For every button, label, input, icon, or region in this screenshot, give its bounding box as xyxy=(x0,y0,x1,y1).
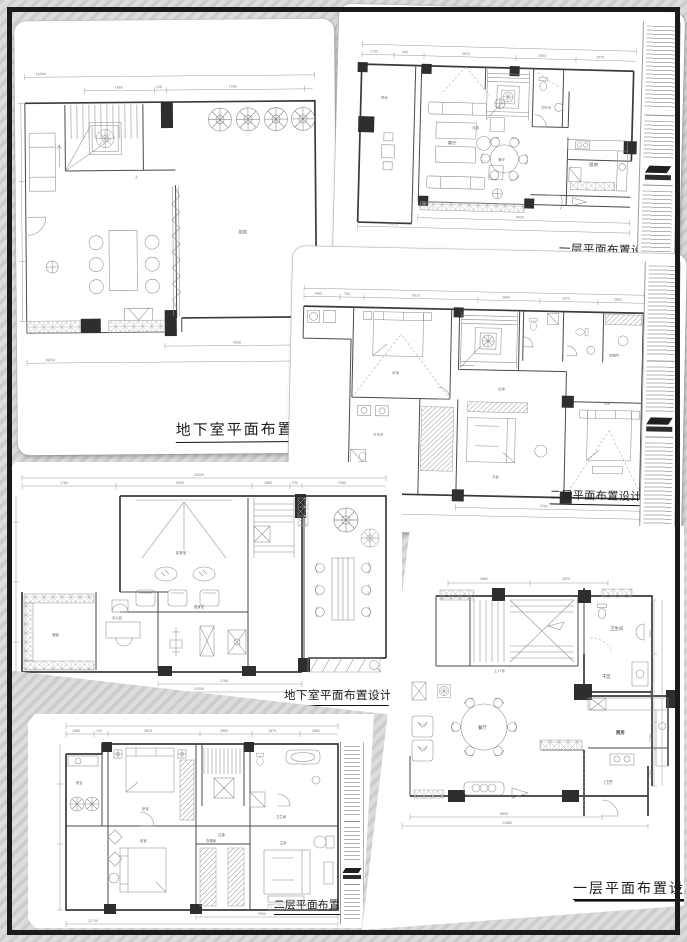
svg-text:1860: 1860 xyxy=(115,85,123,89)
company-logo xyxy=(645,417,673,432)
home-theater: 影音室 xyxy=(136,500,232,606)
svg-text:1465: 1465 xyxy=(72,729,80,733)
hall-label: 过道 xyxy=(218,832,225,837)
dimension-top: 1465 745 5615 2665 1875 2665 xyxy=(304,285,644,306)
svg-text:24300: 24300 xyxy=(194,687,204,691)
column xyxy=(161,102,173,128)
bath-label: 卫生间 xyxy=(610,625,623,632)
gym-label: 健身区 xyxy=(194,604,205,609)
office: 办公区 xyxy=(106,600,140,646)
svg-text:5050: 5050 xyxy=(233,340,241,344)
walls xyxy=(25,101,317,334)
svg-text:卫生间: 卫生间 xyxy=(373,432,384,437)
living-label: 客厅 xyxy=(448,139,458,146)
column xyxy=(578,590,591,603)
svg-text:1860: 1860 xyxy=(264,481,272,485)
foyer: 门厅 xyxy=(584,754,618,816)
stairs: 上 xyxy=(57,104,139,180)
bath-label: 卫生间 xyxy=(276,814,287,819)
svg-text:9600: 9600 xyxy=(500,812,508,816)
column xyxy=(574,684,592,700)
column xyxy=(358,62,368,72)
svg-text:2590: 2590 xyxy=(540,504,548,508)
svg-text:745: 745 xyxy=(96,729,102,733)
stairs xyxy=(254,498,294,558)
svg-text:1465: 1465 xyxy=(314,291,322,295)
bathroom xyxy=(534,73,563,128)
dimension-bottom: 5050 16650 xyxy=(27,340,317,367)
kitchen-label: 厨房 xyxy=(589,161,599,168)
svg-text:24300: 24300 xyxy=(194,473,204,477)
svg-text:1875: 1875 xyxy=(562,577,570,581)
sheet-title-second-floor-mid: 二层平面布置设计图 xyxy=(550,489,654,506)
garden-label: 花园 xyxy=(238,228,247,235)
svg-text:2985: 2985 xyxy=(649,630,653,638)
svg-text:5615: 5615 xyxy=(462,52,470,56)
dining-area: 餐厅 xyxy=(480,135,528,182)
svg-text:2665: 2665 xyxy=(614,298,622,302)
svg-text:16650: 16650 xyxy=(45,358,55,362)
bathroom: 卫生间 xyxy=(590,589,644,652)
basement-mid-plan: 24300 1780 5950 1860 330 5380 xyxy=(8,462,402,716)
dining-table xyxy=(89,230,160,294)
svg-text:衣帽间: 衣帽间 xyxy=(609,353,620,358)
foyer-label: 门厅 xyxy=(604,779,613,786)
utility xyxy=(307,310,335,323)
sheet-basement-mid: 24300 1780 5950 1860 330 5380 xyxy=(8,462,402,716)
column xyxy=(448,790,465,802)
bath-1 xyxy=(523,313,559,348)
column xyxy=(452,489,464,501)
kitchen-label: 厨房 xyxy=(616,729,625,736)
sheet-title-basement-mid: 地下室平面布置设计图 xyxy=(284,690,404,706)
kitchen: 厨房 xyxy=(540,698,668,766)
title-block xyxy=(639,261,681,530)
second-floor-bottom-plan: 1465 745 5615 2665 1875 2665 阳台 xyxy=(28,714,374,928)
svg-text:745: 745 xyxy=(344,292,350,296)
svg-text:330: 330 xyxy=(292,481,298,485)
dining-label: 餐厅 xyxy=(498,157,506,162)
stairs: 上17步 xyxy=(474,600,574,673)
column xyxy=(165,310,177,336)
column xyxy=(102,742,112,752)
stairs xyxy=(486,69,529,120)
column xyxy=(454,307,464,317)
svg-text:2685: 2685 xyxy=(480,577,488,581)
column xyxy=(562,790,579,802)
title-block xyxy=(637,21,681,256)
left-room xyxy=(27,133,58,273)
bath-label: 卫生间 xyxy=(541,105,552,110)
master-bedroom: 主卧 xyxy=(264,836,334,910)
column xyxy=(624,141,637,154)
column xyxy=(524,198,534,208)
svg-text:2190: 2190 xyxy=(649,734,653,742)
title-block xyxy=(340,742,364,924)
bedroom-2: 卧室 xyxy=(108,830,166,892)
svg-text:5380: 5380 xyxy=(338,481,346,485)
svg-text:2665: 2665 xyxy=(220,729,228,733)
balcony-label: 阳台 xyxy=(381,95,389,100)
title-block-notes xyxy=(344,746,360,816)
company-logo xyxy=(643,166,673,181)
svg-text:1735: 1735 xyxy=(370,49,378,53)
svg-text:5950: 5950 xyxy=(258,912,266,916)
title-block-notes xyxy=(645,26,677,111)
svg-text:2665: 2665 xyxy=(312,729,320,733)
bath-2 xyxy=(567,328,596,356)
walls xyxy=(410,588,668,816)
svg-text:5615: 5615 xyxy=(412,293,420,297)
dry-label: 干区 xyxy=(602,674,611,680)
title-block-notes xyxy=(647,265,677,356)
column xyxy=(422,64,432,74)
dimension-bottom: 9600 11680 xyxy=(402,812,648,829)
av-label: 影音室 xyxy=(176,550,187,555)
cloak-label: 衣帽间 xyxy=(206,838,217,843)
column xyxy=(244,742,254,752)
company-logo xyxy=(344,868,360,879)
svg-text:13135: 13135 xyxy=(388,222,398,226)
bedroom-back: 次卧 xyxy=(466,402,548,481)
dining-area: 餐厅 xyxy=(451,696,516,757)
svg-text:5615: 5615 xyxy=(144,729,152,733)
svg-text:330: 330 xyxy=(156,85,162,89)
svg-text:1875: 1875 xyxy=(596,55,604,59)
svg-text:1875: 1875 xyxy=(562,297,570,301)
svg-text:1285: 1285 xyxy=(649,770,653,778)
column xyxy=(492,588,505,601)
sheet-title-first-floor-bottom: 一层平面布置设计图 xyxy=(573,882,687,900)
closet-top-right: 衣帽间 xyxy=(605,314,642,358)
dining-label: 餐厅 xyxy=(478,724,487,731)
wardrobe-hatch xyxy=(420,407,453,472)
svg-text:8930: 8930 xyxy=(516,215,524,219)
sheet-second-floor-bottom: 1465 745 5615 2665 1875 2665 阳台 xyxy=(28,714,374,928)
svg-text:12730: 12730 xyxy=(88,919,98,923)
kitchen: 厨房 卫生间 xyxy=(539,105,629,191)
column xyxy=(242,666,256,676)
hall-label: 过道 xyxy=(498,386,505,391)
wine-cellar: 酒窖 xyxy=(24,594,94,670)
svg-text:1875: 1875 xyxy=(268,729,276,733)
stairs xyxy=(461,311,518,368)
dimension-top: 2685 1875 xyxy=(448,577,608,586)
cellar-label: 酒窖 xyxy=(52,632,59,637)
first-floor-top-plan: 1735 945 5615 2665 1875 阳台 xyxy=(333,4,685,265)
svg-text:945: 945 xyxy=(402,50,408,54)
column xyxy=(510,66,520,76)
svg-text:1590: 1590 xyxy=(229,84,237,88)
svg-text:5950: 5950 xyxy=(176,481,184,485)
bedroom-1: 卧室 xyxy=(114,748,194,826)
column xyxy=(81,319,101,333)
master-bedroom: 主卧 xyxy=(568,400,642,493)
svg-text:1780: 1780 xyxy=(60,481,68,485)
svg-text:1780: 1780 xyxy=(220,679,228,683)
terrace-strip xyxy=(308,658,381,672)
svg-text:2665: 2665 xyxy=(502,295,510,299)
bed2-label: 卧室 xyxy=(140,838,147,843)
stairs-note: 上17步 xyxy=(494,668,506,673)
stairs xyxy=(204,748,240,798)
bath-3: 卫生间 xyxy=(350,405,453,471)
balcony: 阳台 xyxy=(379,95,396,170)
dimension-right: 2985 6665 2190 1285 xyxy=(649,600,662,786)
column xyxy=(158,666,172,676)
svg-text:6665: 6665 xyxy=(649,690,653,698)
drawing-collage: 16500 1860 330 1590 上 xyxy=(0,0,687,942)
window-hatch xyxy=(440,590,474,600)
balcony-label: 阳台 xyxy=(76,780,83,785)
tea-room xyxy=(298,498,379,620)
svg-text:2665: 2665 xyxy=(538,54,546,58)
svg-text:11680: 11680 xyxy=(502,821,512,825)
balcony: 阳台 xyxy=(68,756,99,811)
side-furniture xyxy=(412,682,450,761)
living-room: 客厅 xyxy=(426,66,505,199)
bed2-label: 次卧 xyxy=(492,474,499,479)
office-label: 办公区 xyxy=(112,615,123,620)
garden: 花园 xyxy=(208,107,315,235)
dry-area: 干区 xyxy=(602,662,648,686)
sheet-first-floor-top: 1735 945 5615 2665 1875 阳台 xyxy=(333,4,685,265)
bedroom-front: 卧室 xyxy=(352,311,452,399)
bed1-label: 卧室 xyxy=(142,806,149,811)
svg-text:16500: 16500 xyxy=(36,72,46,76)
column xyxy=(104,904,116,914)
hall-label: 过道 xyxy=(472,125,480,130)
column xyxy=(358,116,374,132)
dimension-top: 1735 945 5615 2665 1875 xyxy=(362,41,636,64)
svg-text:上: 上 xyxy=(134,174,138,179)
bedroom-label: 卧室 xyxy=(392,370,399,375)
closets: 衣帽间 xyxy=(200,838,244,906)
walls xyxy=(22,496,386,672)
dimension-top: 1465 745 5615 2665 1875 2665 xyxy=(57,723,338,910)
master-label: 主卧 xyxy=(280,840,287,845)
bathroom: 卫生间 xyxy=(250,750,320,819)
